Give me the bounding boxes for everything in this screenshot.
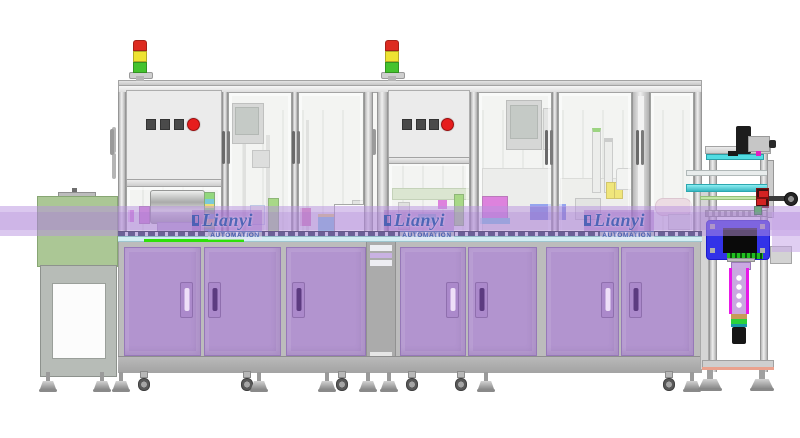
panel-button[interactable] (174, 119, 184, 130)
guide-tube (686, 170, 772, 176)
handwheel-shaft (769, 196, 785, 201)
cabinet-door-handle[interactable] (475, 282, 488, 318)
leveling-foot (112, 372, 130, 392)
leveling-foot (318, 372, 336, 392)
caster-wheel (454, 371, 468, 391)
emergency-stop-button[interactable] (441, 118, 454, 131)
glass-door-handle[interactable] (297, 131, 300, 164)
station-foot (698, 370, 722, 392)
door-divider (388, 157, 470, 164)
door-handle-outer[interactable] (110, 129, 114, 155)
right-band-block (772, 212, 800, 252)
panel-button[interactable] (402, 119, 412, 130)
watermark-logo (384, 215, 391, 226)
watermark: Lianyi AUTOMATION (384, 210, 454, 240)
station-foot (750, 370, 774, 392)
deck-chip-black (728, 151, 738, 156)
caster-wheel (335, 371, 349, 391)
watermark-subtitle: AUTOMATION (600, 231, 654, 240)
feeder-foot (93, 372, 111, 392)
red-bearing-block (756, 188, 769, 198)
caster-wheel (405, 371, 419, 391)
tower-light-red (385, 40, 399, 51)
feeder-lid-knob (72, 188, 77, 192)
panel-button[interactable] (146, 119, 156, 130)
signal-tower-stem (388, 76, 396, 81)
glass-door-handle[interactable] (545, 130, 548, 165)
tower-light-yellow (133, 51, 147, 62)
mid-column-stripe (370, 245, 392, 251)
leveling-foot (250, 372, 268, 392)
handwheel[interactable] (784, 192, 798, 206)
emergency-stop-button[interactable] (187, 118, 200, 131)
caster-wheel (137, 371, 151, 391)
glass-door-handle[interactable] (227, 131, 230, 164)
cabinet-door-handle[interactable] (601, 282, 614, 318)
watermark-subtitle: AUTOMATION (400, 231, 454, 240)
panel-button[interactable] (429, 119, 439, 130)
cabinet-door-handle[interactable] (180, 282, 193, 318)
watermark: Lianyi AUTOMATION (584, 210, 654, 240)
feeder-foot (39, 372, 57, 392)
glass-door-handle[interactable] (550, 130, 553, 165)
panel-button[interactable] (160, 119, 170, 130)
leveling-foot (359, 372, 377, 392)
door-divider (126, 179, 222, 187)
watermark-logo (584, 215, 591, 226)
assembly-line-render: Lianyi AUTOMATION Lianyi AUTOMATION Lian… (0, 0, 800, 438)
cabinet-door-handle[interactable] (292, 282, 305, 318)
arm-nozzle-cylinder (732, 327, 746, 344)
glass-door-handle[interactable] (222, 131, 225, 164)
glass-door-handle[interactable] (641, 130, 644, 165)
tower-light-yellow (385, 51, 399, 62)
watermark-brand: Lianyi (594, 210, 645, 231)
deck-chip-magenta (756, 151, 761, 156)
watermark-logo (192, 215, 199, 226)
cabinet-door-handle[interactable] (629, 282, 642, 318)
mid-column-stripe (370, 253, 392, 258)
fixture-chip (710, 248, 715, 253)
leveling-foot (380, 372, 398, 392)
mid-column-stripe (370, 260, 392, 266)
cabinet-door-handle[interactable] (208, 282, 221, 318)
panel-button[interactable] (416, 119, 426, 130)
motor-bracket (748, 136, 770, 152)
gripper-arm (729, 268, 749, 314)
feeder-stand-panel (52, 283, 106, 359)
watermark: Lianyi AUTOMATION (192, 210, 262, 240)
signal-tower-stem (136, 76, 144, 81)
control-door (126, 90, 222, 180)
glass-door-handle[interactable] (292, 131, 295, 164)
motor-knob (769, 140, 776, 148)
tower-light-green (133, 62, 147, 73)
watermark-brand: Lianyi (394, 210, 445, 231)
watermark-subtitle: AUTOMATION (208, 231, 262, 240)
cabinet-door-handle[interactable] (446, 282, 459, 318)
leveling-foot (477, 372, 495, 392)
glass-door-handle[interactable] (636, 130, 639, 165)
green-guide (700, 196, 764, 200)
caster-wheel (662, 371, 676, 391)
tower-light-red (133, 40, 147, 51)
door-handle-outer[interactable] (372, 129, 376, 155)
tower-light-green (385, 62, 399, 73)
watermark-brand: Lianyi (202, 210, 253, 231)
